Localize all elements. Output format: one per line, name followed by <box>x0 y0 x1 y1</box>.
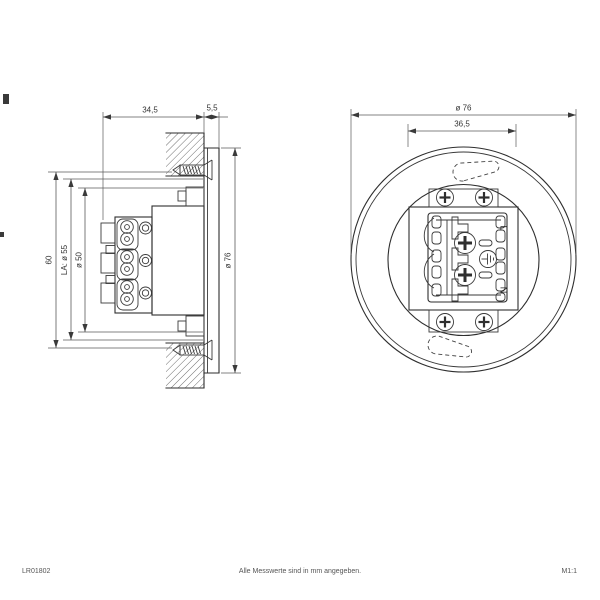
terminal-label-live: L <box>499 225 509 230</box>
wire-clamp-spring-top <box>424 218 434 252</box>
terminal-block-front: L N <box>424 213 508 302</box>
terminal-screw-top <box>455 233 476 254</box>
terminal-label-neutral: N <box>499 287 509 294</box>
dimension-outer-dia-side: ø 76 <box>221 148 241 373</box>
dimension-flange-depth: 5,5 <box>204 104 228 149</box>
edge-mark <box>0 232 4 237</box>
dim-label-hole-circle: LA: ø 55 <box>60 244 69 275</box>
units-note: Alle Messwerte sind in mm angegeben. <box>239 568 361 575</box>
footer: LR01802 Alle Messwerte sind in mm angege… <box>22 568 577 575</box>
scale-label: M1:1 <box>561 568 577 575</box>
keyhole-slot-bottom <box>428 336 472 357</box>
wall-section-bottom <box>166 343 204 388</box>
wall-section-top <box>166 133 204 176</box>
housing-body <box>152 187 204 336</box>
doc-number: LR01802 <box>22 568 51 575</box>
technical-drawing-page: 34,5 5,5 60 LA: ø 55 <box>0 0 600 600</box>
front-view: L N ø 76 36,5 <box>351 104 576 373</box>
dim-label-recess-depth: 34,5 <box>142 106 158 115</box>
dim-label-flange-depth: 5,5 <box>206 104 218 113</box>
terminal-screw-bottom <box>455 265 476 286</box>
dim-label-height: 60 <box>45 255 54 264</box>
contact-prong-earth <box>452 248 468 270</box>
contact-prong-neutral <box>452 279 468 301</box>
dim-label-plate-width: 36,5 <box>454 120 470 129</box>
technical-drawing: 34,5 5,5 60 LA: ø 55 <box>0 0 600 600</box>
plate-screw-top-left <box>437 189 454 206</box>
wire-clamp-spring-bottom <box>424 254 434 288</box>
dim-label-cutout: ø 50 <box>75 251 84 268</box>
earth-symbol <box>480 251 497 268</box>
side-section-view: 34,5 5,5 60 LA: ø 55 <box>0 94 241 388</box>
dimension-cutout: ø 50 <box>75 188 204 332</box>
terminal-block-side <box>101 217 152 313</box>
plate-screw-bottom-right <box>476 314 493 331</box>
flange-profile <box>204 133 219 388</box>
plate-screw-top-right <box>476 189 493 206</box>
dim-label-outer-dia-front: ø 76 <box>455 104 472 113</box>
keyhole-slot-top <box>453 161 499 181</box>
gear-tray-plate <box>409 189 518 332</box>
dim-label-outer-dia-side: ø 76 <box>224 252 233 269</box>
edge-mark <box>3 94 9 104</box>
trim-rings <box>351 147 576 372</box>
dimension-plate-width: 36,5 <box>408 120 516 148</box>
plate-screw-bottom-left <box>437 314 454 331</box>
